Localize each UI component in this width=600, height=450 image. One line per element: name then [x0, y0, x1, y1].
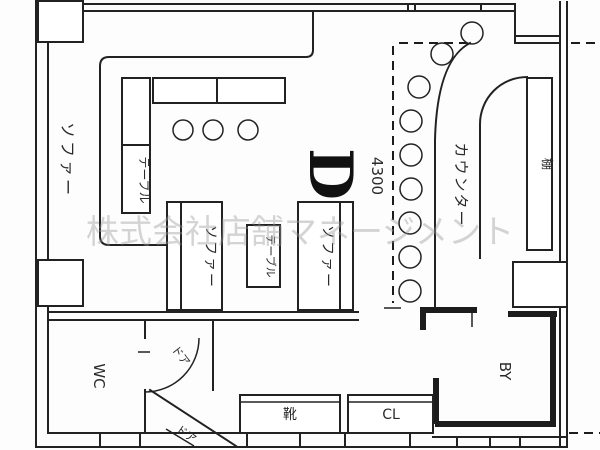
- entry-door-label: ドア: [173, 422, 198, 445]
- floor-plan: ソファー テーブル ソファー テーブル ソファー D 4300 カウンター 棚 …: [0, 0, 600, 450]
- wc-door-arc: [145, 338, 199, 392]
- chair: [173, 120, 193, 140]
- wall-pier: [38, 1, 83, 42]
- counter-stool: [399, 280, 421, 302]
- shelf-label: 棚: [540, 158, 555, 170]
- counter-stool: [431, 43, 453, 65]
- zone-marker-d: D: [295, 148, 365, 200]
- wall-block: [513, 262, 567, 307]
- bench-top: [153, 78, 285, 103]
- dimension-label: 4300: [368, 157, 386, 195]
- counter-stool: [461, 22, 483, 44]
- chair: [238, 120, 258, 140]
- corner-table-label: テーブル: [137, 156, 152, 203]
- chair: [203, 120, 223, 140]
- wall-pier: [38, 260, 83, 306]
- counter-area: [384, 22, 567, 308]
- counter-stool: [400, 178, 422, 200]
- wc-door-label: ドア: [169, 343, 193, 368]
- bench-corner: [122, 78, 150, 145]
- wc-label: WC: [90, 363, 108, 388]
- counter-stool: [400, 110, 422, 132]
- backyard-label: BY: [496, 362, 514, 381]
- counter-stool: [408, 76, 430, 98]
- shoes-label: 靴: [283, 407, 297, 423]
- watermark-text: 株式会社店舗マネージメント: [86, 212, 514, 251]
- closet-label: CL: [382, 407, 400, 423]
- sofa-left-label: ソファー: [58, 122, 77, 198]
- counter-stool: [400, 144, 422, 166]
